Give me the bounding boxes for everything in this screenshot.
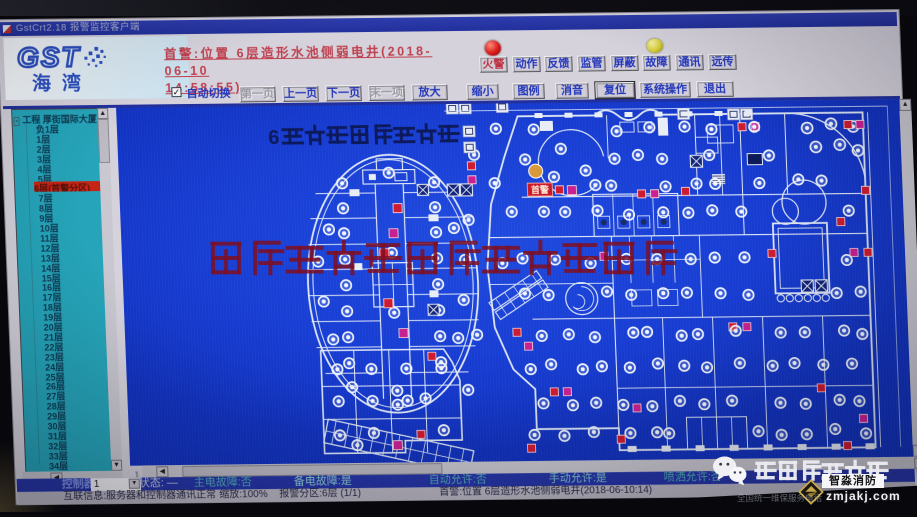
svg-text:首警: 首警 xyxy=(531,184,549,195)
svg-text:6: 6 xyxy=(268,127,280,149)
